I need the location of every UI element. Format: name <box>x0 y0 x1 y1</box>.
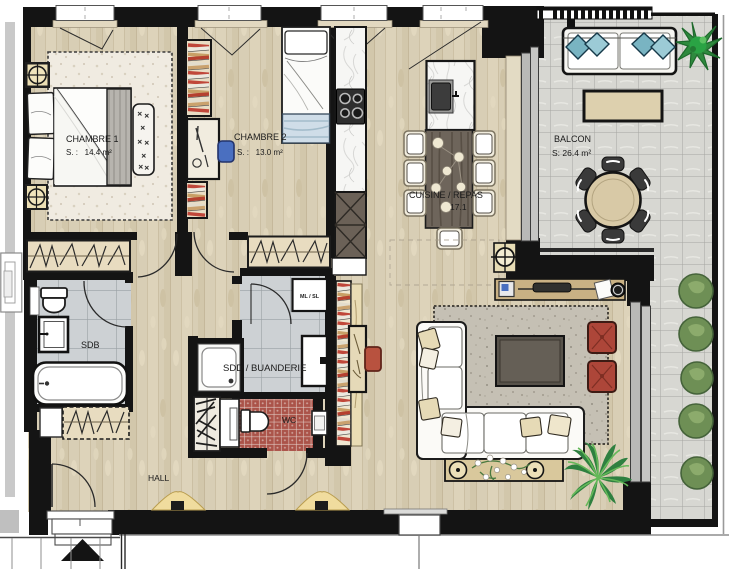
svg-text:WC: WC <box>282 415 296 425</box>
svg-text:SDD / BUANDERIE: SDD / BUANDERIE <box>223 363 306 374</box>
svg-text:S. : 14.4 m²: S. : 14.4 m² <box>66 148 112 157</box>
svg-text:BALCON: BALCON <box>554 134 591 144</box>
svg-text:CUISINE / REPAS: CUISINE / REPAS <box>409 190 483 200</box>
svg-text:HALL: HALL <box>148 473 170 483</box>
svg-text:CHAMBRE 1: CHAMBRE 1 <box>66 134 119 144</box>
svg-text:S. : 13.0 m²: S. : 13.0 m² <box>237 148 283 157</box>
svg-text:17.1: 17.1 <box>450 202 467 212</box>
svg-text:SDB: SDB <box>81 340 100 350</box>
svg-text:S: 26.4 m²: S: 26.4 m² <box>552 148 591 158</box>
svg-text:ML / SL: ML / SL <box>300 294 320 300</box>
svg-text:CHAMBRE 2: CHAMBRE 2 <box>234 132 287 142</box>
